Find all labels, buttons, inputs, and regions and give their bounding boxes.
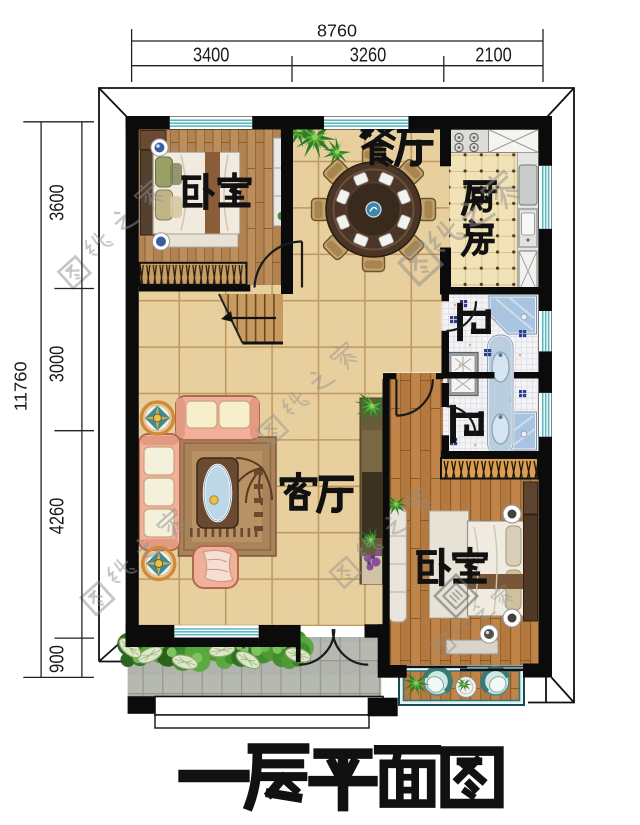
svg-text:4260: 4260 [47,498,69,535]
svg-text:3000: 3000 [47,346,69,383]
svg-text:2100: 2100 [475,45,512,67]
svg-text:8760: 8760 [317,21,357,41]
svg-text:3400: 3400 [193,45,230,67]
svg-text:11760: 11760 [10,361,30,411]
svg-text:3260: 3260 [350,45,387,67]
svg-text:3600: 3600 [47,184,69,221]
svg-text:900: 900 [47,645,69,673]
